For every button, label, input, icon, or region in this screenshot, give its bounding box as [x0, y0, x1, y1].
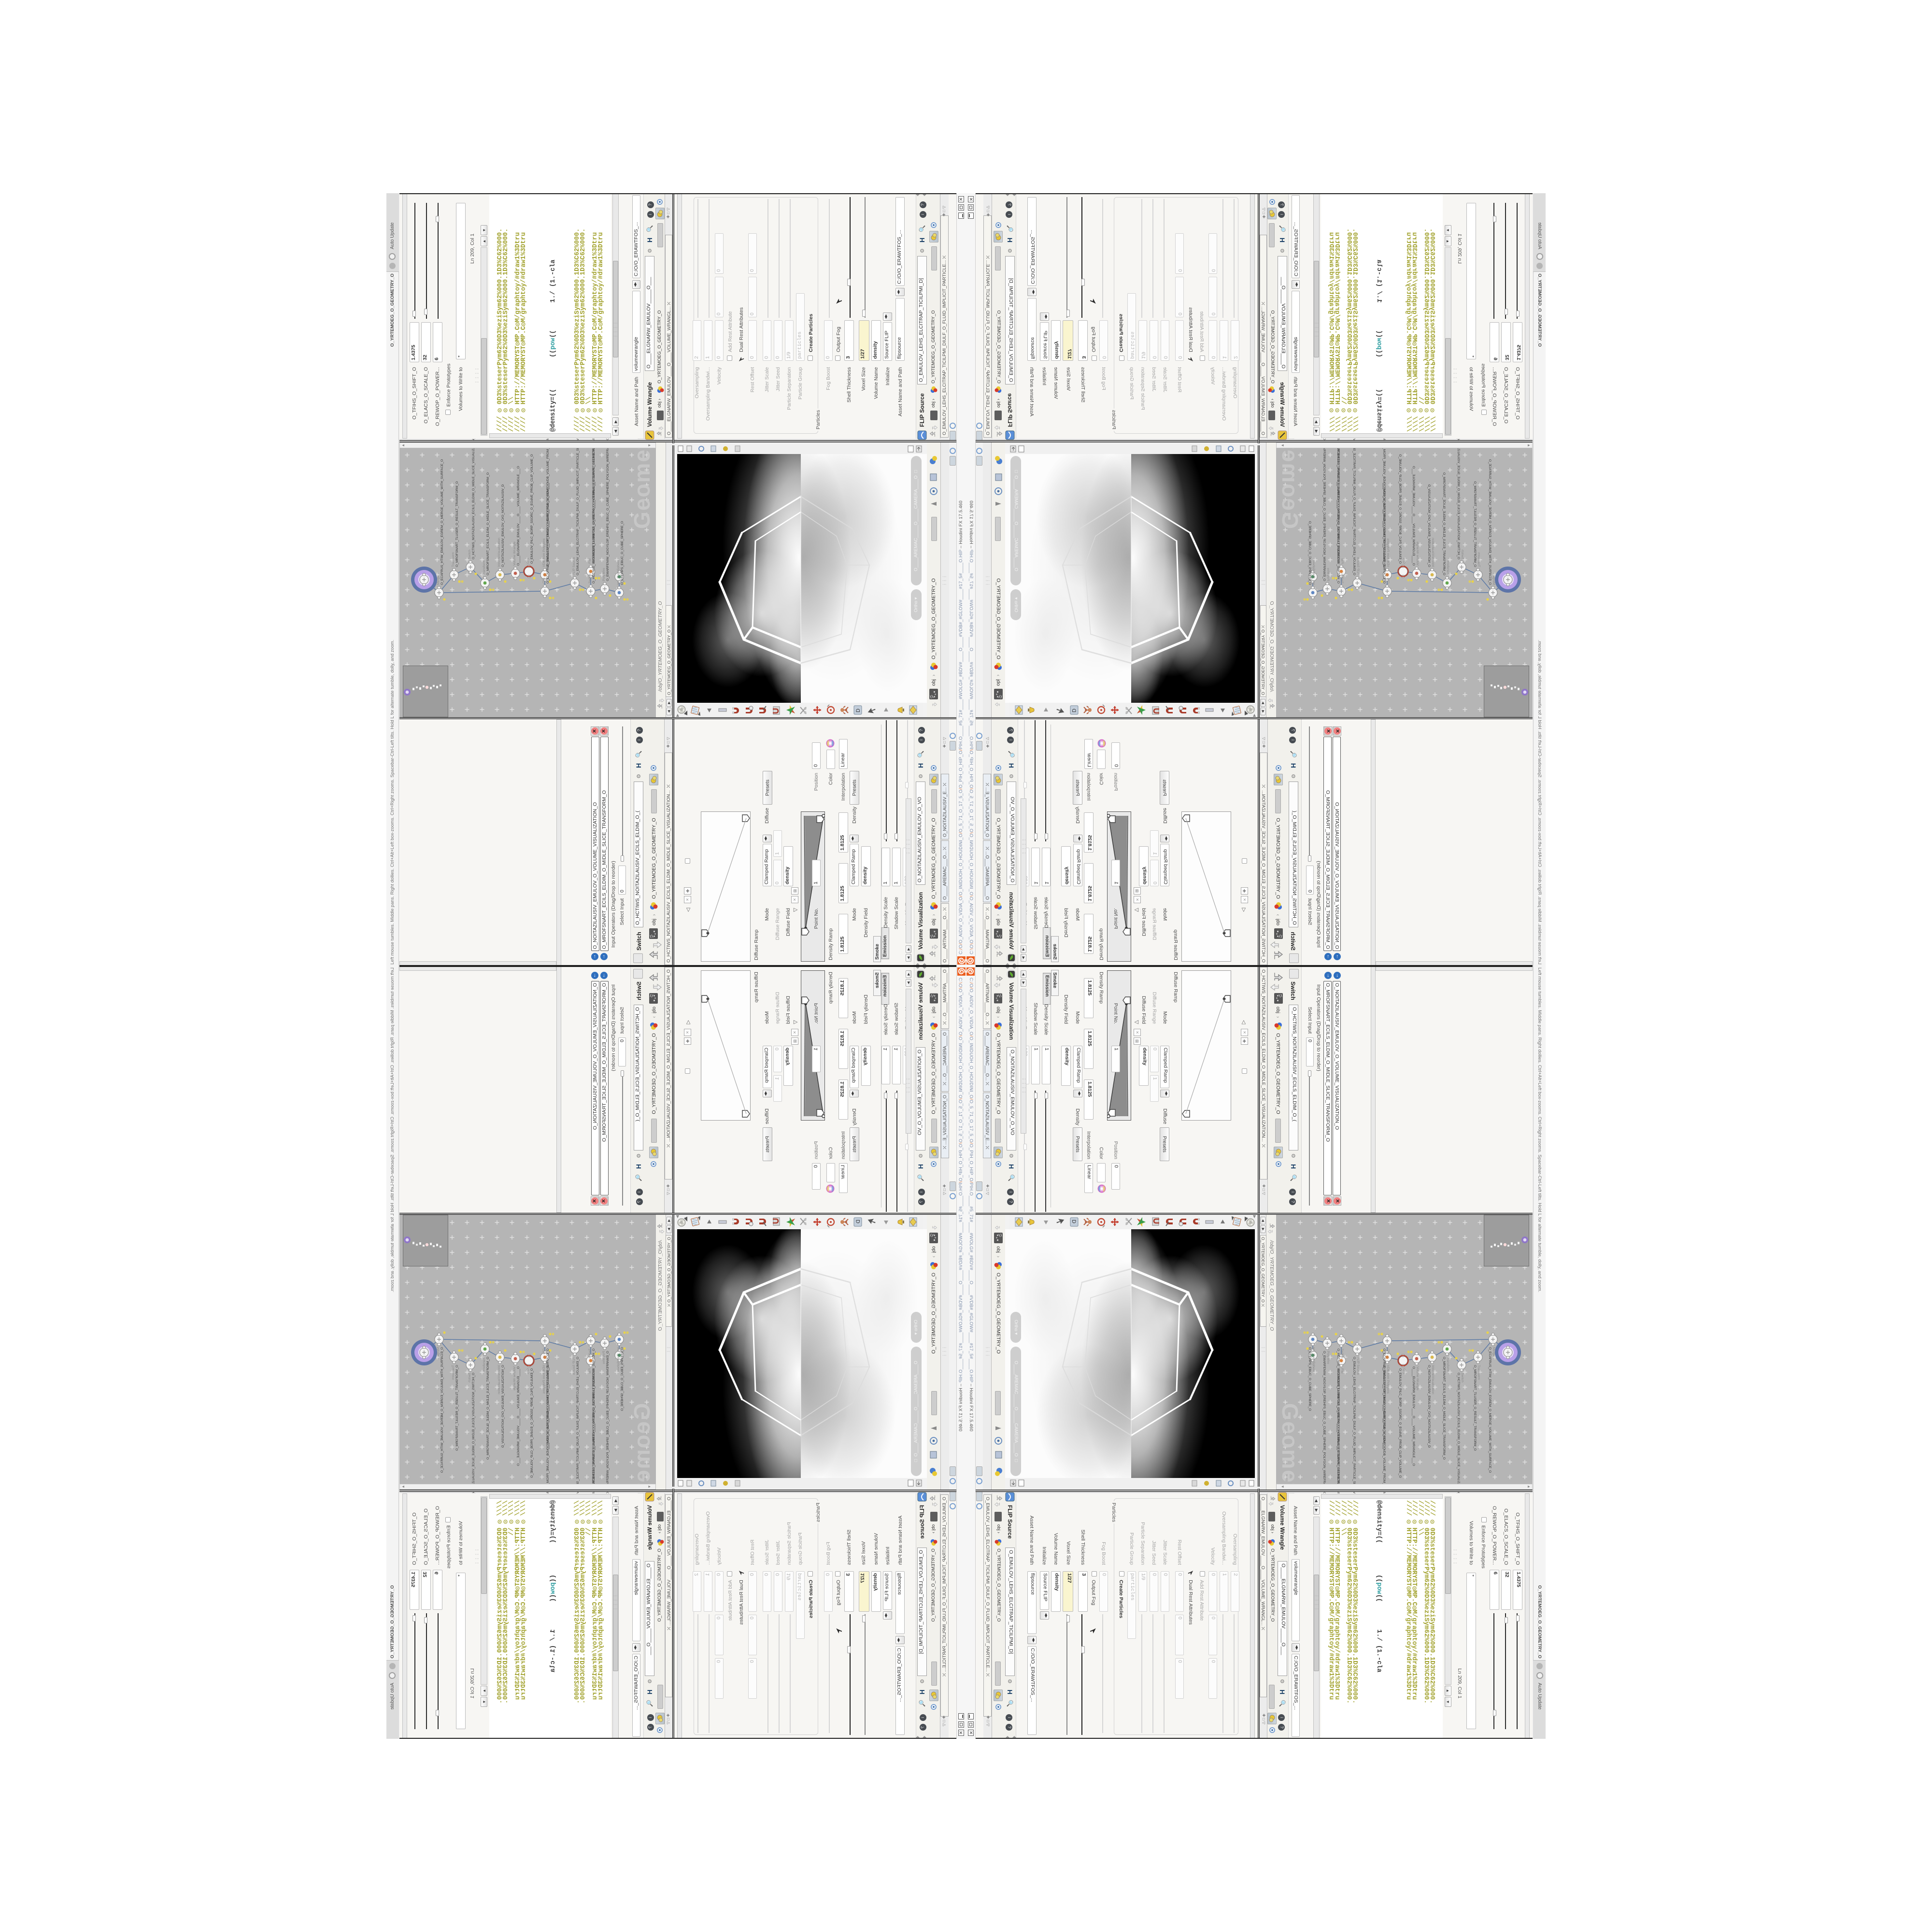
svg-text:D: D: [1071, 709, 1077, 712]
svg-text:D: D: [1071, 1220, 1077, 1223]
svg-text:D: D: [855, 1220, 861, 1223]
svg-text:D: D: [855, 709, 861, 712]
